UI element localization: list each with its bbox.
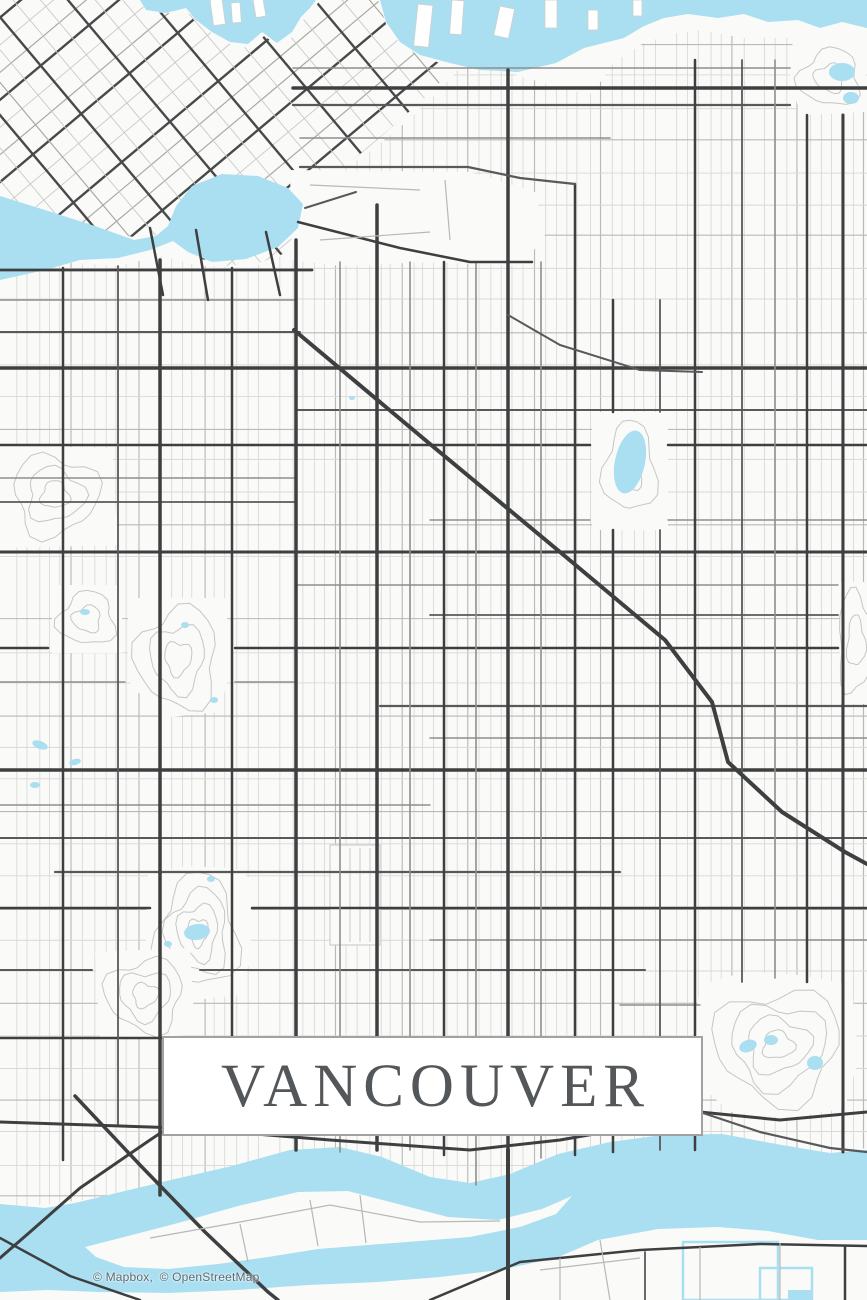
park-fraserview-golf <box>694 972 858 1118</box>
pier <box>633 0 642 16</box>
park-cemetery <box>330 845 380 945</box>
pond <box>843 92 859 104</box>
pier <box>545 0 557 28</box>
map-attribution: © Mapbox, © OpenStreetMap <box>93 1270 262 1284</box>
pond <box>829 63 855 81</box>
park-quilchena-park <box>0 445 118 548</box>
pond <box>181 622 189 628</box>
pond <box>30 782 40 788</box>
park-hastings-park <box>790 38 867 115</box>
pond <box>207 876 215 882</box>
city-title: VANCOUVER <box>215 1056 650 1117</box>
pond <box>349 396 355 400</box>
pond <box>164 941 172 947</box>
city-title-banner: VANCOUVER <box>162 1036 703 1136</box>
mapbox-attribution-link[interactable]: © Mapbox, <box>93 1270 153 1284</box>
pond <box>827 10 845 22</box>
pond <box>80 609 90 615</box>
pier <box>231 2 241 23</box>
osm-attribution-link[interactable]: © OpenStreetMap <box>160 1270 260 1284</box>
canal-basin <box>788 1290 812 1300</box>
map-poster: VANCOUVER © Mapbox, © OpenStreetMap <box>0 0 867 1300</box>
park-langara-golf <box>95 948 195 1040</box>
pond <box>210 697 218 703</box>
pier <box>450 0 464 35</box>
pond <box>807 1056 823 1070</box>
pond <box>764 1035 778 1045</box>
pier <box>588 10 598 30</box>
